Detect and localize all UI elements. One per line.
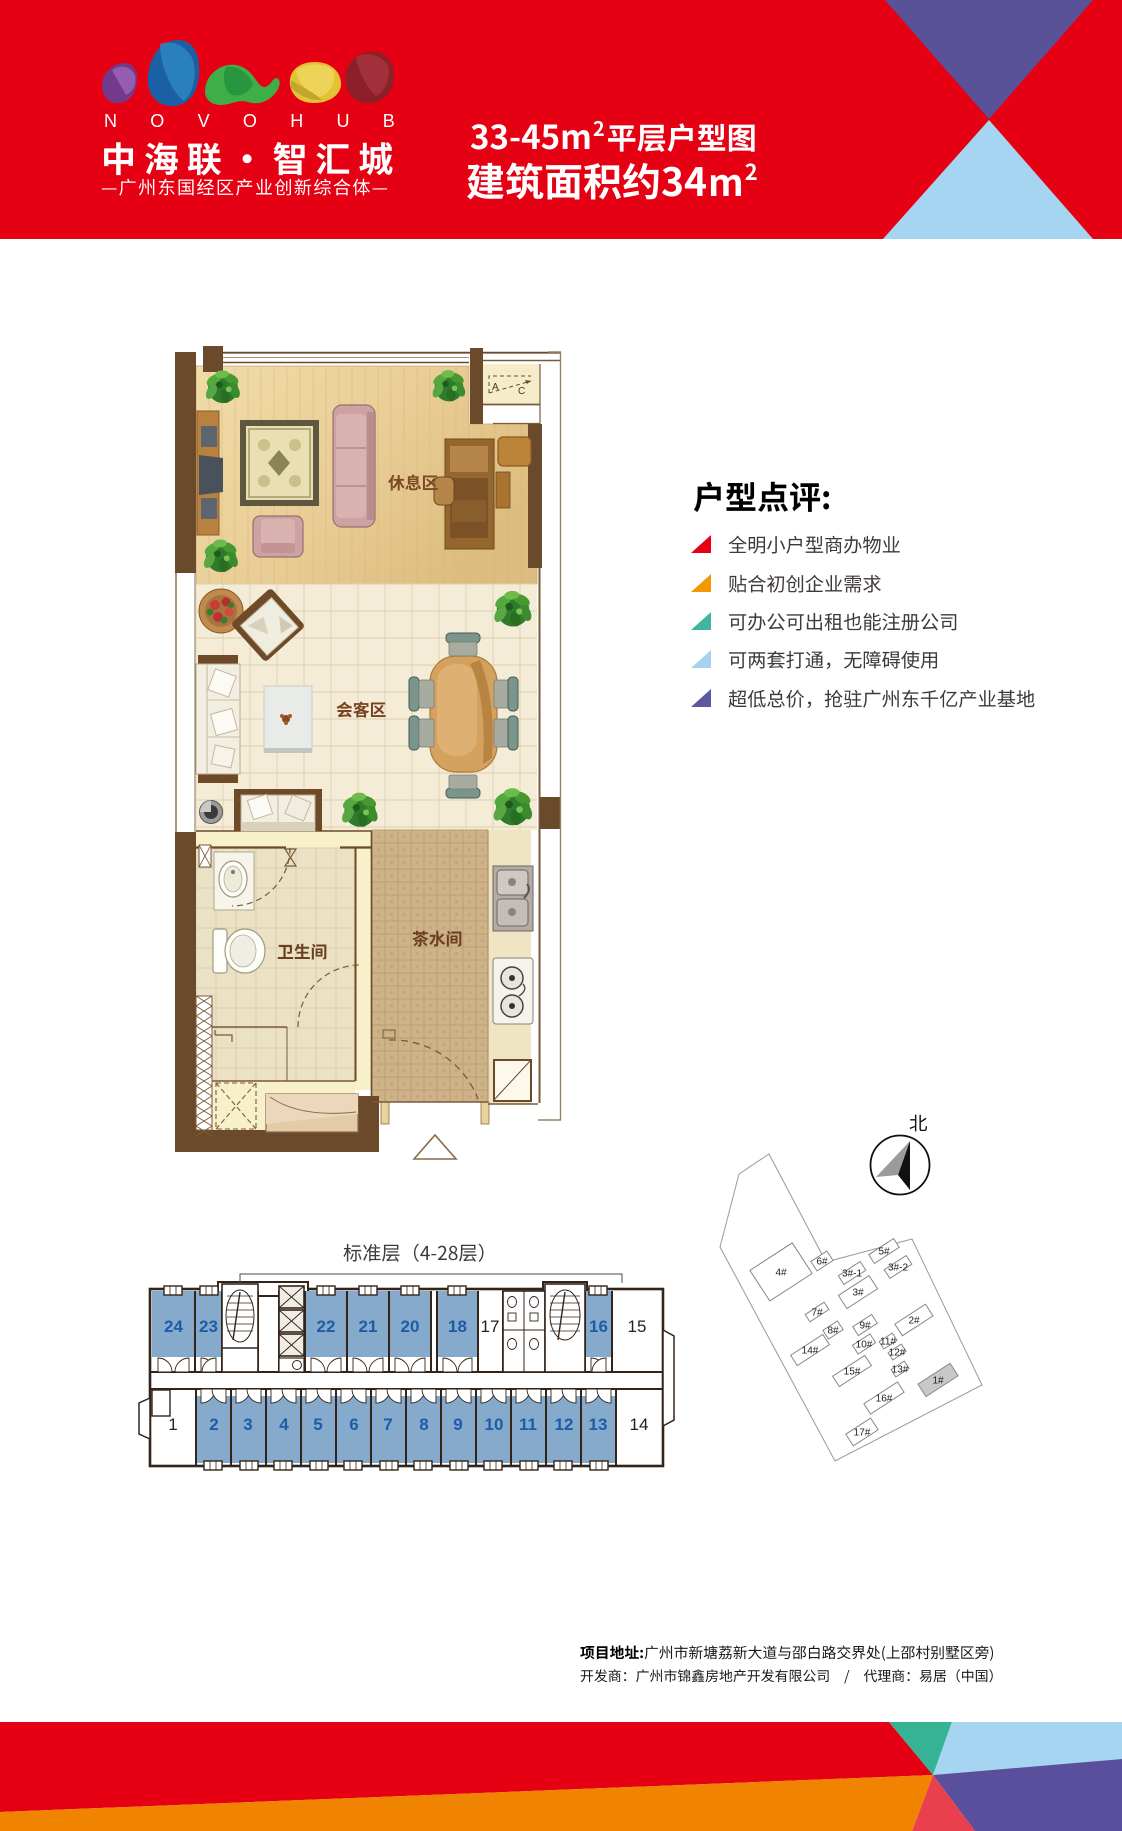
svg-text:NOVOHUB: NOVOHUB: [104, 111, 428, 131]
svg-text:5: 5: [313, 1415, 322, 1434]
svg-text:15#: 15#: [844, 1367, 861, 1378]
svg-text:3#: 3#: [852, 1288, 864, 1299]
svg-text:11#: 11#: [880, 1337, 896, 1348]
svg-text:7#: 7#: [811, 1308, 823, 1319]
svg-text:16: 16: [589, 1317, 608, 1336]
svg-text:23: 23: [199, 1317, 218, 1336]
svg-text:1#: 1#: [932, 1376, 944, 1387]
svg-text:8: 8: [419, 1415, 428, 1434]
svg-text:6#: 6#: [816, 1257, 828, 1268]
svg-text:5#: 5#: [878, 1247, 890, 1258]
svg-text:20: 20: [401, 1317, 420, 1336]
svg-text:6: 6: [349, 1415, 358, 1434]
svg-text:A: A: [492, 382, 499, 393]
svg-text:2#: 2#: [908, 1316, 920, 1327]
svg-text:24: 24: [164, 1317, 183, 1336]
svg-text:11: 11: [519, 1415, 537, 1434]
svg-text:17#: 17#: [854, 1428, 871, 1439]
svg-text:2: 2: [209, 1415, 218, 1434]
svg-text:3: 3: [243, 1415, 252, 1434]
svg-text:1: 1: [168, 1415, 177, 1434]
svg-text:17: 17: [481, 1317, 500, 1336]
svg-text:13: 13: [589, 1415, 608, 1434]
svg-text:10: 10: [485, 1415, 504, 1434]
svg-text:14: 14: [630, 1415, 649, 1434]
svg-text:10#: 10#: [856, 1340, 873, 1351]
svg-text:C: C: [518, 386, 525, 397]
svg-text:12: 12: [555, 1415, 574, 1434]
svg-text:16#: 16#: [876, 1394, 893, 1405]
svg-text:21: 21: [359, 1317, 378, 1336]
svg-text:4#: 4#: [775, 1268, 787, 1279]
svg-text:15: 15: [628, 1317, 647, 1336]
svg-text:14#: 14#: [802, 1346, 819, 1357]
svg-text:7: 7: [383, 1415, 392, 1434]
svg-text:3#-1: 3#-1: [842, 1269, 862, 1280]
svg-text:4: 4: [279, 1415, 289, 1434]
svg-text:18: 18: [448, 1317, 467, 1336]
svg-text:9: 9: [453, 1415, 462, 1434]
svg-text:22: 22: [317, 1317, 336, 1336]
svg-text:13#: 13#: [892, 1365, 909, 1376]
svg-text:12#: 12#: [889, 1348, 906, 1359]
svg-text:3#-2: 3#-2: [888, 1263, 908, 1274]
svg-text:8#: 8#: [827, 1326, 839, 1337]
svg-text:9#: 9#: [859, 1321, 871, 1332]
